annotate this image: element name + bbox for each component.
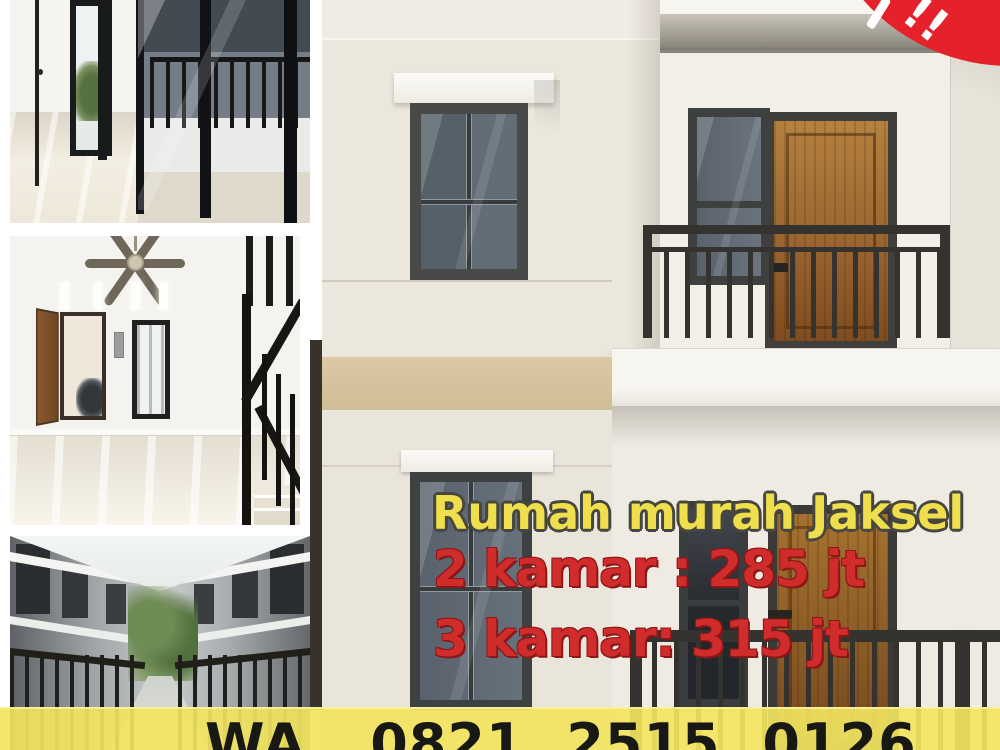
price-3-bedroom: 3 kamar: 315 jt [433,610,848,668]
wall-seam [322,280,612,282]
motorbike [76,378,106,416]
transom-slot [131,282,140,310]
open-doorway [60,312,106,420]
wall-seam [322,38,660,40]
wooden-door [36,308,59,426]
whatsapp-contact: WA. 0821 2515 0126 [205,712,917,750]
balcony-floor-slab [612,348,1000,406]
railing-top-rail [643,225,950,234]
price-2-bedroom: 2 kamar : 285 jt [433,540,864,598]
window-canopy-upper [394,73,554,103]
fan-rod [134,236,137,251]
beige-accent-band [322,355,612,410]
photo-interior-balcony [10,0,310,223]
wall-frame-edge [98,0,107,160]
narrow-window [132,320,170,419]
photo-interior-livingroom [10,236,300,525]
stair-post [242,294,251,525]
property-ad-flyer: Rumah murah Jaksel 2 kamar : 285 jt 3 ka… [0,0,1000,750]
slab-shadow [612,406,1000,446]
stair-upper-railing [246,236,300,306]
headline-text: Rumah murah Jaksel [432,486,964,540]
photo-edge-sliver [310,340,322,710]
light-switch [114,332,124,358]
railing-bars [643,252,950,338]
upper-window [410,103,528,280]
upper-wall-strip [322,0,660,38]
canopy-shadow [534,80,560,152]
window-mullion [688,600,739,606]
window-bars [137,325,165,414]
transom-slot [159,282,168,310]
window-canopy-lower [401,450,553,472]
transom-slot [94,282,103,310]
stair-baluster [290,394,295,525]
glass-reflection [138,0,310,210]
ceiling-fan-hub [127,254,144,271]
stair-baluster [276,374,281,506]
ceiling-edge [660,50,950,53]
door-handle [38,69,43,75]
skirting [10,429,300,436]
transom-slot [60,282,69,310]
dark-window [106,584,126,624]
stair-baluster [262,354,267,480]
glass-reflection [421,114,517,269]
door-frame-edge [35,0,39,186]
balcony-railing-upper [643,225,950,338]
